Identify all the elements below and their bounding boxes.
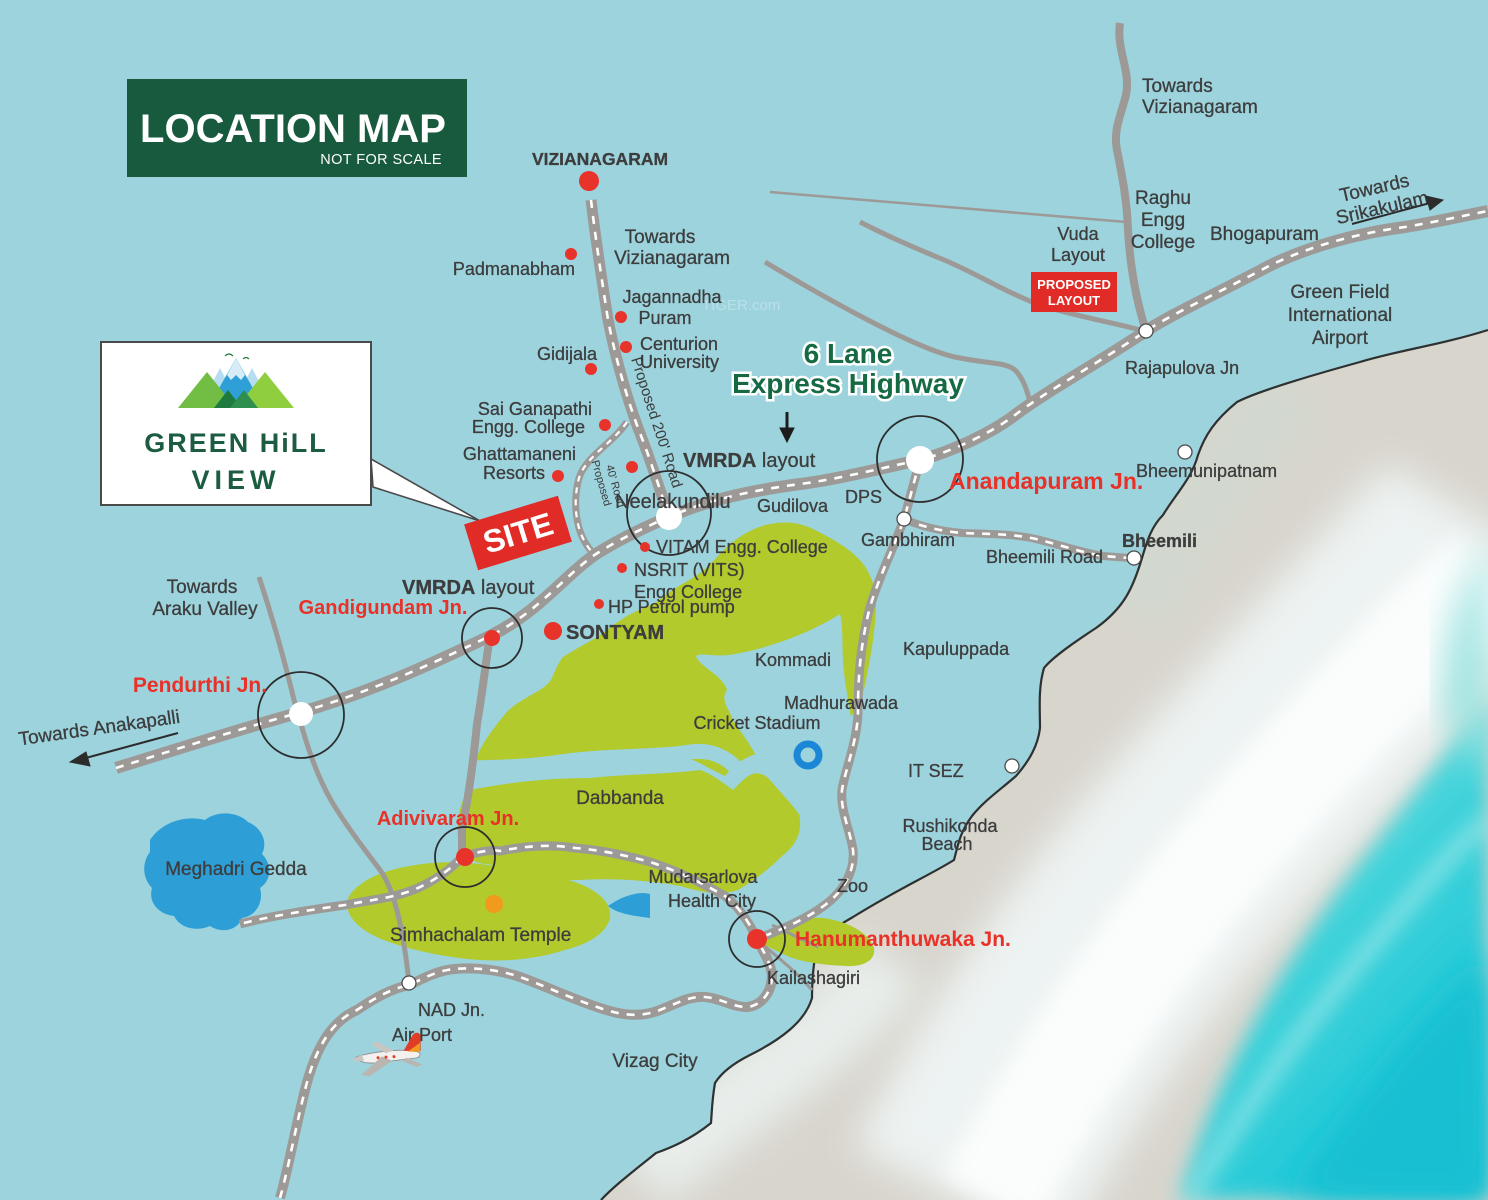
svg-text:Adivivaram Jn.: Adivivaram Jn. <box>377 808 519 830</box>
svg-text:VIEW: VIEW <box>191 465 280 495</box>
svg-text:Beach: Beach <box>921 834 972 854</box>
svg-text:Bheemunipatnam: Bheemunipatnam <box>1136 461 1277 481</box>
svg-text:Centurion: Centurion <box>640 334 718 354</box>
svg-text:Bhogapuram: Bhogapuram <box>1210 224 1319 245</box>
svg-text:LAYOUT: LAYOUT <box>1048 293 1100 308</box>
svg-text:Gidijala: Gidijala <box>537 344 598 364</box>
svg-text:Neelakundilu: Neelakundilu <box>615 491 731 513</box>
svg-text:Mudarsarlova: Mudarsarlova <box>648 867 758 887</box>
svg-text:HP Petrol pump: HP Petrol pump <box>608 597 735 617</box>
svg-text:Jagannadha: Jagannadha <box>622 287 722 307</box>
svg-text:Kommadi: Kommadi <box>755 650 831 670</box>
svg-text:Express Highway: Express Highway <box>732 368 964 399</box>
svg-text:Green Field: Green Field <box>1290 282 1389 303</box>
svg-text:Cricket Stadium: Cricket Stadium <box>693 713 820 733</box>
svg-text:University: University <box>640 352 719 372</box>
svg-text:VMRDA layout: VMRDA layout <box>683 450 816 472</box>
svg-text:Towards: Towards <box>167 577 238 598</box>
svg-text:Padmanabham: Padmanabham <box>453 259 575 279</box>
svg-text:VMRDA layout: VMRDA layout <box>402 577 535 599</box>
svg-text:Gandigundam Jn.: Gandigundam Jn. <box>299 597 468 619</box>
svg-text:IT SEZ: IT SEZ <box>908 761 964 781</box>
svg-text:Madhurawada: Madhurawada <box>784 693 899 713</box>
svg-text:NSRIT (VITS): NSRIT (VITS) <box>634 560 745 580</box>
svg-text:Zoo: Zoo <box>837 876 868 896</box>
svg-text:Kailashagiri: Kailashagiri <box>767 968 860 988</box>
svg-text:Engg: Engg <box>1141 210 1185 231</box>
svg-text:NOT FOR SCALE: NOT FOR SCALE <box>320 152 442 168</box>
svg-text:Towards: Towards <box>1142 76 1213 97</box>
svg-text:Hanumanthuwaka Jn.: Hanumanthuwaka Jn. <box>795 928 1011 951</box>
svg-text:Health City: Health City <box>668 891 756 911</box>
svg-text:Resorts: Resorts <box>483 463 545 483</box>
svg-text:Araku Valley: Araku Valley <box>152 599 258 620</box>
svg-text:Rajapulova Jn: Rajapulova Jn <box>1125 358 1239 378</box>
svg-text:Meghadri Gedda: Meghadri Gedda <box>165 859 307 880</box>
svg-text:Rushikonda: Rushikonda <box>902 816 998 836</box>
svg-text:Air Port: Air Port <box>392 1025 452 1045</box>
svg-text:Anandapuram Jn.: Anandapuram Jn. <box>949 468 1143 494</box>
svg-text:NAD Jn.: NAD Jn. <box>418 1000 485 1020</box>
svg-text:Sai Ganapathi: Sai Ganapathi <box>478 399 592 419</box>
svg-text:Bheemili: Bheemili <box>1122 531 1197 551</box>
svg-text:International: International <box>1288 305 1393 326</box>
svg-text:DPS: DPS <box>845 487 882 507</box>
svg-text:Engg. College: Engg. College <box>472 417 585 437</box>
svg-text:6 Lane: 6 Lane <box>804 338 893 369</box>
svg-text:VIZIANAGARAM: VIZIANAGARAM <box>532 149 668 169</box>
svg-text:Pendurthi Jn.: Pendurthi Jn. <box>133 674 267 697</box>
svg-text:Airport: Airport <box>1312 328 1369 349</box>
svg-text:College: College <box>1131 232 1195 253</box>
svg-text:Bheemili Road: Bheemili Road <box>986 547 1103 567</box>
svg-text:PROPOSED: PROPOSED <box>1037 277 1111 292</box>
svg-text:LOCATION MAP: LOCATION MAP <box>140 107 446 151</box>
svg-text:Ghattamaneni: Ghattamaneni <box>463 444 576 464</box>
svg-text:Puram: Puram <box>638 308 691 328</box>
svg-text:Vuda: Vuda <box>1057 224 1099 244</box>
svg-text:Gudilova: Gudilova <box>757 496 829 516</box>
svg-text:VITAM Engg. College: VITAM Engg. College <box>656 537 828 557</box>
svg-text:Vizag City: Vizag City <box>612 1051 698 1072</box>
svg-text:Vizianagaram: Vizianagaram <box>1142 97 1258 118</box>
svg-text:Vizianagaram: Vizianagaram <box>614 248 730 269</box>
svg-text:Raghu: Raghu <box>1135 188 1191 209</box>
svg-text:Simhachalam Temple: Simhachalam Temple <box>390 925 571 946</box>
svg-text:Towards: Towards <box>625 227 696 248</box>
svg-text:Dabbanda: Dabbanda <box>576 788 664 809</box>
svg-text:Layout: Layout <box>1051 245 1105 265</box>
svg-text:Kapuluppada: Kapuluppada <box>903 639 1010 659</box>
svg-text:GREEN HiLL: GREEN HiLL <box>144 428 328 458</box>
svg-text:SONTYAM: SONTYAM <box>566 622 664 644</box>
svg-text:Gambhiram: Gambhiram <box>861 530 955 550</box>
